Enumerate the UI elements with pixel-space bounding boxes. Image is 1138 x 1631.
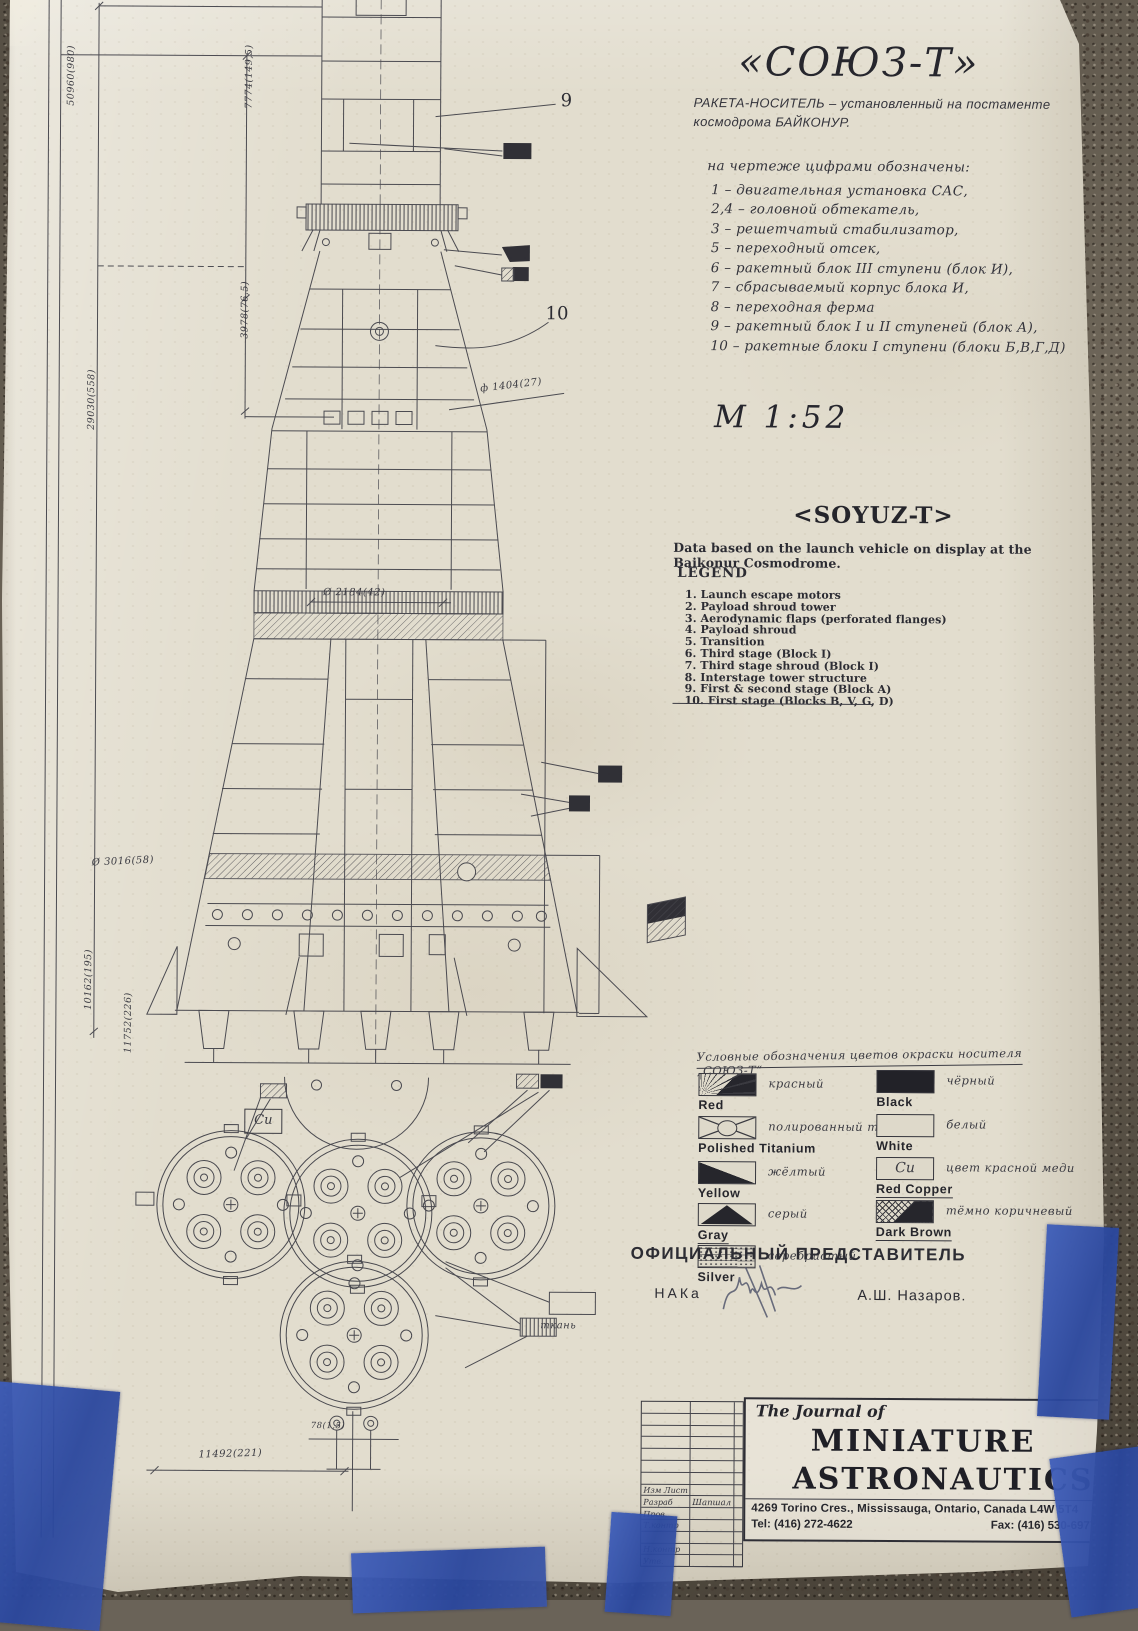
red-label-en: Red <box>698 1098 723 1112</box>
blue-tape-bottom-left <box>0 1381 120 1631</box>
legend-ru-item: 3 – решетчатый стабилизатор, <box>711 220 1067 241</box>
organization-label: НАКа <box>654 1285 701 1301</box>
blue-tape-right-edge <box>1037 1224 1119 1420</box>
gray-label-en: Gray <box>698 1228 729 1244</box>
dim-7774: 7774(149,5) <box>244 44 255 108</box>
dim-11492: 11492(221) <box>198 1448 262 1461</box>
yellow-swatch-icon <box>698 1161 756 1184</box>
color-row-white: белый White <box>876 1114 934 1137</box>
black-swatch-icon <box>876 1070 934 1093</box>
copper-callout-box: Cu <box>244 1109 282 1134</box>
journal-address-rule <box>745 1498 1100 1501</box>
red-copper-label-en: Red Copper <box>876 1182 953 1198</box>
journal-telephone: Tel: (416) 272-4622 <box>751 1518 852 1531</box>
dim-11752: 11752(226) <box>123 992 134 1053</box>
legend-russian-list: 1 – двигательная установка САС, 2,4 – го… <box>710 181 1067 358</box>
black-label-ru: чёрный <box>947 1073 996 1087</box>
drawing-scale: М 1:52 <box>714 399 849 436</box>
table-row-izm-list: Изм Лист <box>643 1486 687 1495</box>
fabric-label: ткань <box>540 1320 576 1331</box>
polished-titanium-swatch-icon <box>698 1116 756 1139</box>
title-block: Изм Лист Разраб Шапшал Пров. Т.контр Н.к… <box>640 1397 1103 1549</box>
legend-ru-item: 6 – ракетный блок III ступени (блок И), <box>711 259 1067 280</box>
legend-english-list: 1. Launch escape motors 2. Payload shrou… <box>684 589 1037 709</box>
legend-ru-item: 5 – переходный отсек, <box>711 239 1067 260</box>
color-row-red-copper: Cu цвет красной меди Red Copper <box>876 1157 934 1180</box>
legend-ru-item: 10 – ракетные блоки I ступени (блоки Б,В… <box>710 337 1066 358</box>
red-copper-swatch-icon: Cu <box>876 1157 934 1180</box>
yellow-label-ru: жёлтый <box>768 1164 826 1178</box>
soyuz-rocket-drawing <box>0 0 704 1541</box>
signature <box>715 1259 825 1324</box>
red-copper-label-ru: цвет красной меди <box>946 1160 1075 1175</box>
subtitle-line-2: космодрома БАЙКОНУР. <box>694 112 1084 133</box>
legend-ru-item: 7 – сбрасываемый корпус блока И, <box>711 278 1067 299</box>
blueprint-sheet: 50960(980) 29030(558) 7774(149,5) 3978(7… <box>0 0 1138 1600</box>
journal-address: 4269 Torino Cres., Mississauga, Ontario,… <box>751 1502 1103 1516</box>
color-row-red: красный Red <box>698 1073 756 1096</box>
designer-name: Шапшал <box>692 1498 731 1508</box>
white-label-en: White <box>876 1139 913 1153</box>
color-row-dark-brown: тёмно коричневый Dark Brown <box>876 1200 934 1223</box>
legend-ru-item: 8 – переходная ферма <box>711 298 1067 319</box>
dim-78: 78(1,5) <box>311 1421 346 1431</box>
dim-29030: 29030(558) <box>86 369 97 430</box>
black-label-en: Black <box>876 1095 912 1109</box>
title-english: <SOYUZ-T> <box>673 501 1073 530</box>
dim-diameter-2184: Ø 2184(42) <box>323 587 385 598</box>
dark-brown-label-ru: тёмно коричневый <box>946 1203 1073 1218</box>
color-row-yellow: жёлтый Yellow <box>698 1161 756 1184</box>
callout-10: 10 <box>545 303 568 324</box>
blue-tape-titleblock-left <box>605 1512 678 1616</box>
blue-tape-bottom-center <box>351 1547 547 1614</box>
gray-label-ru: серый <box>768 1206 808 1220</box>
callout-9: 9 <box>561 90 573 111</box>
dim-total-height: 50960(980) <box>66 45 77 106</box>
white-label-ru: белый <box>946 1117 986 1131</box>
dark-brown-label-en: Dark Brown <box>876 1225 952 1241</box>
subtitle-russian: РАКЕТА-НОСИТЕЛЬ – установленный на поста… <box>694 93 1084 133</box>
legend-english: LEGEND 1. Launch escape motors 2. Payloa… <box>676 565 1037 709</box>
color-row-titanium: полированный титан Polished Titanium <box>698 1116 756 1139</box>
table-row-razrab: Разраб <box>643 1498 672 1507</box>
legend-russian-header: на чертеже цифрами обозначены: <box>707 157 1067 178</box>
journal-name-line1: MINIATURE <box>746 1423 1101 1460</box>
legend-en-item: 10. First stage (Blocks B, V, G, D) <box>684 695 1036 709</box>
dim-10162: 10162(195) <box>83 949 94 1010</box>
legend-ru-item: 1 – двигательная установка САС, <box>711 181 1067 202</box>
color-row-gray: серый Gray <box>698 1203 756 1226</box>
gray-swatch-icon <box>698 1203 756 1226</box>
dim-3978: 3978(76,5) <box>239 281 250 339</box>
white-swatch-icon <box>876 1114 934 1137</box>
dark-brown-swatch-icon <box>876 1200 934 1223</box>
yellow-label-en: Yellow <box>698 1186 741 1200</box>
red-label-ru: красный <box>768 1076 823 1090</box>
journal-box: The Journal of MINIATURE ASTRONAUTICS 42… <box>743 1397 1103 1543</box>
representative-name: А.Ш. Назаров. <box>857 1288 966 1305</box>
red-swatch-icon <box>698 1073 756 1096</box>
legend-russian: на чертеже цифрами обозначены: 1 – двига… <box>706 157 1067 358</box>
drawing-content: 50960(980) 29030(558) 7774(149,5) 3978(7… <box>0 0 1138 1603</box>
page-title: «СОЮЗ-Т» <box>659 39 1059 87</box>
journal-pretitle: The Journal of <box>756 1401 885 1421</box>
subtitle-line-1: РАКЕТА-НОСИТЕЛЬ – установленный на поста… <box>694 93 1084 114</box>
titanium-label-en: Polished Titanium <box>698 1141 816 1156</box>
legend-english-header: LEGEND <box>677 565 1037 583</box>
legend-ru-item: 2,4 – головной обтекатель, <box>711 200 1067 221</box>
color-row-black: чёрный Black <box>876 1070 934 1093</box>
legend-ru-item: 9 – ракетный блок I и II ступеней (блок … <box>710 317 1066 338</box>
